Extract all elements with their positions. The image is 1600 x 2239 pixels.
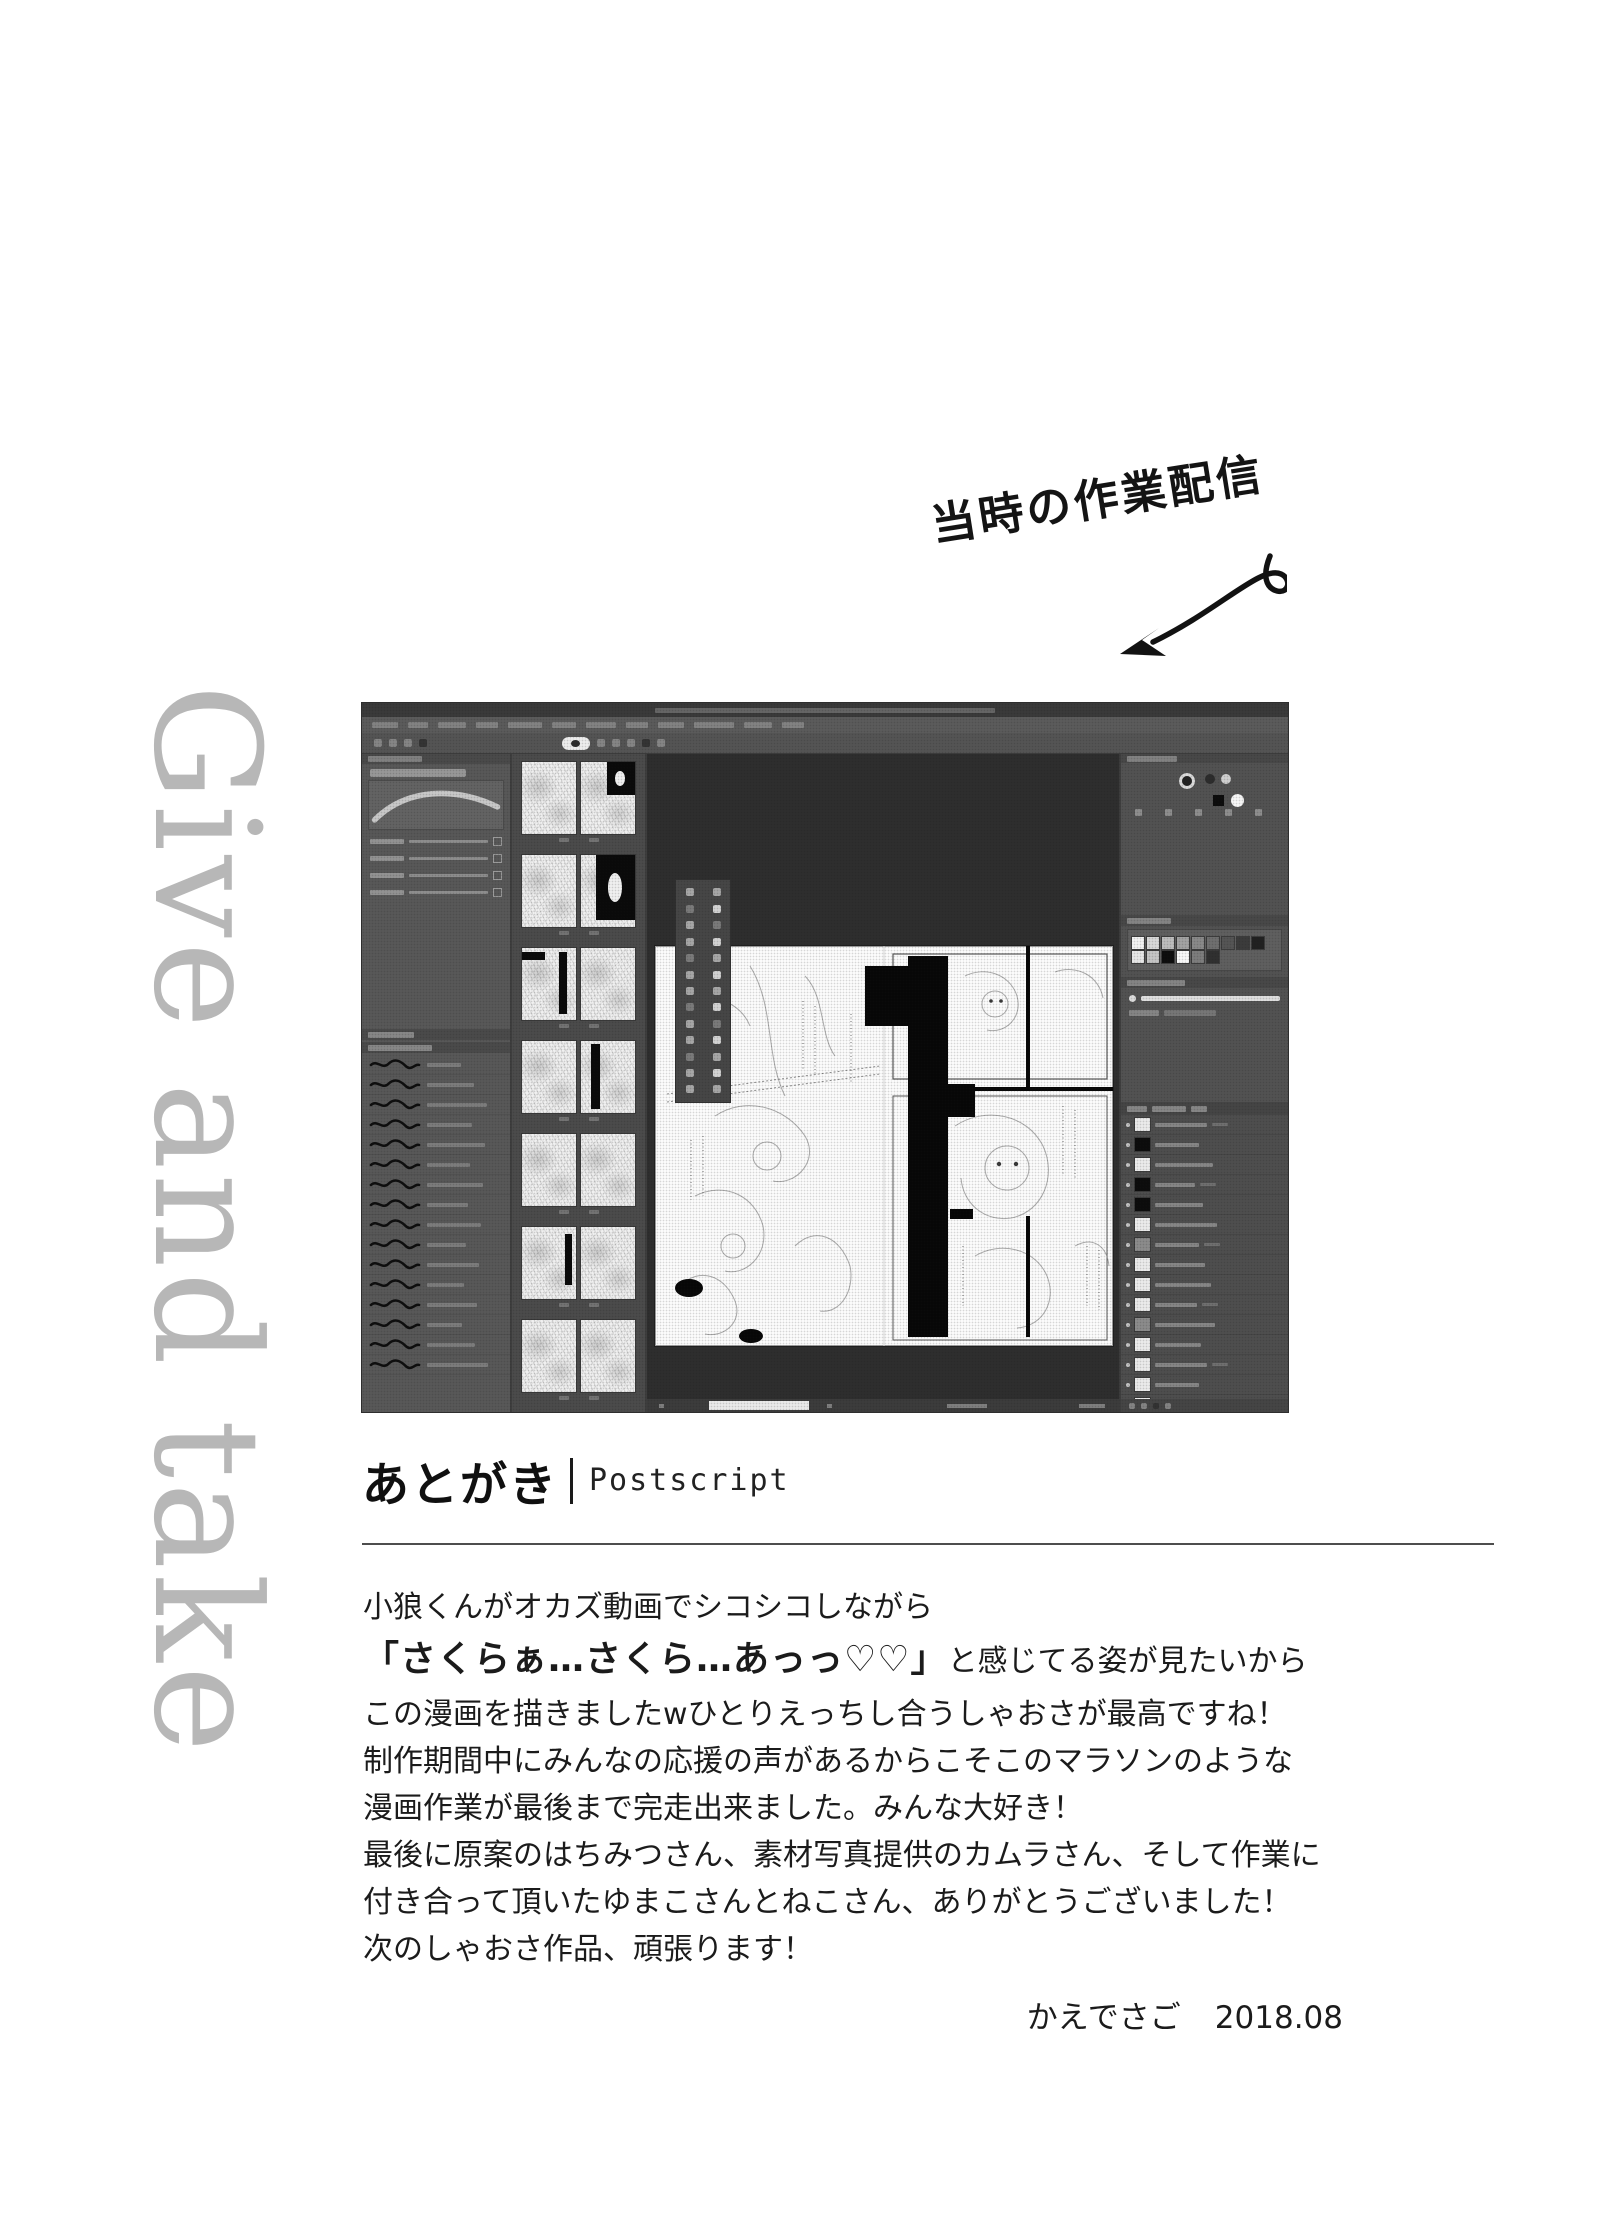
layer-row [1121,1315,1288,1335]
new-layer-icon [1129,1403,1135,1409]
page-spread-thumbnail [522,1041,635,1121]
swatch [1162,937,1174,949]
body-line: 次のしゃおさ作品、頑張ります！ [363,1926,1503,1973]
page-spread-thumbnail [522,1320,635,1400]
tool-icon [686,1003,694,1011]
page-thumbnail [522,1134,576,1206]
layer-name-placeholder [1155,1203,1203,1207]
layer-visibility-icon [1126,1223,1130,1227]
brush-label-placeholder [427,1203,468,1207]
brush-stroke-icon [369,1318,421,1331]
postscript-body: 小狼くんがオカズ動画でシコシコしながら 「さくらぁ…さくら…あっっ♡♡」と感じて… [363,1584,1503,1973]
signature-line: かえでさご2018.08 [363,1992,1343,2037]
tool-icon [713,905,721,913]
layer-name-placeholder [1155,1343,1201,1347]
tool-icon [713,971,721,979]
tool-icon [686,938,694,946]
brush-item [362,1295,510,1315]
screenshot-toolbar [362,733,1288,754]
page-number-placeholder [589,1024,599,1028]
layer-thumbnail [1135,1338,1150,1351]
layer-name-placeholder [1155,1183,1195,1187]
page-number-placeholder [589,1303,599,1307]
swatch [1177,937,1189,949]
layer-panel-header [1121,1102,1288,1115]
layer-row [1121,1255,1288,1275]
brush-label-placeholder [427,1363,488,1367]
layer-visibility-icon [1126,1263,1130,1267]
row-toggle [493,854,502,863]
layer-opacity-placeholder [1212,1123,1228,1126]
layer-header-chip [1191,1106,1207,1112]
layer-visibility-icon [1126,1163,1130,1167]
page-number-placeholder [589,1396,599,1400]
layer-panel-footer [1121,1399,1288,1412]
row-toggle [493,837,502,846]
panel-title-placeholder [368,756,422,762]
tool-section-header [1121,977,1288,988]
tool-icon [713,1020,721,1028]
brush-label-placeholder [427,1143,485,1147]
opacity-slider [1141,996,1280,1001]
brush-stroke-icon [369,1338,421,1351]
layer-row [1121,1235,1288,1255]
brush-label-placeholder [427,1083,474,1087]
layer-name-placeholder [1155,1243,1199,1247]
swatch [1192,951,1204,963]
page-thumbnail-panel [512,754,647,1412]
menu-item-placeholder [782,722,804,728]
postscript-title-en: Postscript [589,1463,790,1498]
app-logo-icon [562,737,590,750]
menu-item-placeholder [476,722,498,728]
author-name: かえでさご [1027,2000,1181,2036]
swatch [1132,937,1144,949]
tool-icon [686,905,694,913]
brush-stroke-icon [369,1358,421,1371]
palette-tab-icon [1225,809,1232,816]
layer-row [1121,1215,1288,1235]
swatch [1237,937,1249,949]
layer-opacity-placeholder [1202,1303,1218,1306]
brush-item [362,1235,510,1255]
page-number-row [522,1210,635,1214]
layer-visibility-icon [1126,1203,1130,1207]
layer-thumbnail [1135,1278,1150,1291]
canvas-area [647,754,1119,1412]
brush-stroke-icon [369,1198,421,1211]
row-label [370,856,404,861]
layer-name-placeholder [1155,1143,1199,1147]
page-thumbnail [522,1227,576,1299]
layer-visibility-icon [1126,1323,1130,1327]
tool-icon [686,921,694,929]
brush-stroke-icon [369,1078,421,1091]
layer-row [1121,1195,1288,1215]
tool-icon [713,1053,721,1061]
delete-layer-icon [1153,1403,1159,1409]
layer-name-placeholder [1155,1283,1211,1287]
brush-item [362,1255,510,1275]
toolbar-icon [374,739,382,747]
page-spread-thumbnail [522,855,635,935]
palette-tab-icon [1195,809,1202,816]
canvas-status-bar [647,1399,1119,1412]
hardness-slider [409,874,488,877]
brush-item [362,1135,510,1155]
line2-rest: と感じてる姿が見たいから [948,1644,1308,1679]
layer-name-placeholder [1155,1323,1215,1327]
tool-icon [686,954,694,962]
mask-icon [1165,1403,1171,1409]
brush-item [362,1195,510,1215]
section-label [1127,918,1171,924]
brush-label-placeholder [427,1323,462,1327]
ink-area [565,1234,572,1284]
page-thumbnail [581,1134,635,1206]
quoted-phrase: 「さくらぁ…さくら…あっっ♡♡」 [363,1639,948,1680]
postscript-heading: あとがき Postscript [362,1446,790,1515]
layer-thumbnail [1135,1198,1150,1211]
sub-tool-section-header [362,1029,510,1040]
layer-header-chip [1127,1106,1147,1112]
layer-opacity-placeholder [1200,1183,1216,1186]
thumbnail-pair [522,1227,635,1299]
tool-property-header [362,754,510,764]
layer-row [1121,1275,1288,1295]
swatch [1192,937,1204,949]
page-number-row [522,1303,635,1307]
titlebar-text-placeholder [655,708,995,713]
page-thumbnail [522,948,576,1020]
panel-spacer [362,901,510,1029]
brush-item [362,1335,510,1355]
blend-row [1121,1006,1288,1020]
brush-stroke-icon [369,1218,421,1231]
layer-row [1121,1295,1288,1315]
tool-icon [686,1053,694,1061]
tool-icon [686,971,694,979]
toolbar-icon [419,739,427,747]
layer-thumbnail [1135,1258,1150,1271]
layer-row [1121,1355,1288,1375]
page-number-placeholder [559,1117,569,1121]
brush-stroke-icon [369,1158,421,1171]
brush-label-placeholder [427,1343,475,1347]
swatch-row [1132,937,1277,949]
menu-item-placeholder [372,722,398,728]
page-number-placeholder [589,931,599,935]
layer-row [1121,1115,1288,1135]
brush-label-placeholder [427,1163,470,1167]
status-zoom-placeholder [947,1404,987,1408]
floating-tool-palette [675,879,731,1103]
page-spread-thumbnail [522,1134,635,1214]
heading-rule [362,1543,1494,1545]
opacity-slider-row [1121,991,1288,1006]
page-number-row [522,1024,635,1028]
layer-visibility-icon [1126,1143,1130,1147]
publish-date: 2018.08 [1215,2000,1343,2036]
menu-item-placeholder [508,722,542,728]
layer-name-placeholder [1155,1303,1197,1307]
heading-divider [570,1458,573,1504]
page-number-placeholder [589,1210,599,1214]
page-thumbnail [581,1041,635,1113]
status-mark [827,1404,832,1408]
brush-stroke-icon [369,1178,421,1191]
opacity-row [362,850,510,867]
brush-size-row [362,833,510,850]
folder-icon [1141,1403,1147,1409]
menu-item-placeholder [694,722,734,728]
layer-row [1121,1335,1288,1355]
toolbar-icon [389,739,397,747]
tool-icon [713,954,721,962]
layer-visibility-icon [1126,1383,1130,1387]
brush-item [362,1115,510,1135]
ink-area [607,762,635,795]
layer-row [1121,1375,1288,1395]
brush-item [362,1175,510,1195]
status-mark [1079,1404,1105,1408]
tool-icon [686,1036,694,1044]
brush-stroke-icon [369,1278,421,1291]
handwritten-annotation: 当時の作業配信 [926,415,1410,554]
menu-item-placeholder [626,722,648,728]
layer-visibility-icon [1126,1363,1130,1367]
blend-label [1129,1010,1159,1016]
toolbar-icon [404,739,412,747]
layer-visibility-icon [1126,1183,1130,1187]
tool-icon [686,1085,694,1093]
swatch [1162,951,1174,963]
row-label [370,839,404,844]
size-slider [409,840,488,843]
layer-visibility-icon [1126,1243,1130,1247]
page-thumbnail [522,762,576,834]
section-label [1127,980,1185,986]
toolbar-icon [597,739,605,747]
panel-title-placeholder [1127,756,1177,762]
brush-item [362,1075,510,1095]
thumbnail-pair [522,1134,635,1206]
brush-stroke-icon [369,1058,421,1071]
ink-area [596,855,635,920]
page-thumbnail [581,855,635,927]
body-line: この漫画を描きましたwひとりえっちし合うしゃおさが最高ですね！ [363,1691,1503,1738]
brush-stroke-preview [368,780,504,830]
layer-name-placeholder [1155,1383,1199,1387]
thumbnail-pair [522,855,635,927]
section-label [368,1032,414,1038]
screenshot-menubar [362,717,1288,733]
tool-icon [686,987,694,995]
handwritten-arrow-icon [1112,548,1287,676]
body-line: 漫画作業が最後まで完走出来ました。みんな大好き！ [363,1785,1503,1832]
screenshot-titlebar [362,703,1288,717]
toolbar-icon [612,739,620,747]
status-mark [659,1404,664,1408]
layer-name-placeholder [1155,1123,1207,1127]
thumbnail-pair [522,1041,635,1113]
brush-label-placeholder [427,1283,464,1287]
page-number-placeholder [559,931,569,935]
toolbar-icon [627,739,635,747]
toolbar-icon [642,739,650,747]
tool-icon [686,1020,694,1028]
page-number-placeholder [559,1210,569,1214]
layer-thumbnail [1135,1358,1150,1371]
dark-color-icon [1205,774,1215,784]
brush-item [362,1315,510,1335]
afterword-page: { "annotation": { "text": "当時の作業配信" }, "… [0,0,1600,2239]
brush-stroke-icon [369,1238,421,1251]
body-line: 付き合って頂いたゆまこさんとねこさん、ありがとうございました！ [363,1879,1503,1926]
tool-icon [713,888,721,896]
layer-thumbnail [1135,1118,1150,1131]
swatch-section-header [1121,915,1288,926]
color-controls [1121,763,1288,823]
layer-thumbnail [1135,1218,1150,1231]
layer-visibility-icon [1126,1283,1130,1287]
section-label [368,1045,432,1051]
layer-row [1121,1155,1288,1175]
hardness-row [362,867,510,884]
brush-item [362,1055,510,1075]
layer-list [1121,1115,1288,1399]
brush-stroke-icon [369,1258,421,1271]
body-line: 最後に原案のはちみつさん、素材写真提供のカムラさん、そして作業に [363,1832,1503,1879]
palette-tab-icon [1255,809,1262,816]
page-spread-thumbnail [522,762,635,842]
tool-icon [713,938,721,946]
brush-stroke-icon [369,1118,421,1131]
swatch-row [1132,951,1277,963]
layer-visibility-icon [1126,1343,1130,1347]
page-number-row [522,1396,635,1400]
thumbnail-pair [522,1320,635,1392]
layer-thumbnail [1135,1178,1150,1191]
layer-opacity-placeholder [1204,1243,1220,1246]
layer-name-placeholder [1155,1223,1217,1227]
brush-label-placeholder [427,1303,477,1307]
tool-icon [713,987,721,995]
body-line: 小狼くんがオカズ動画でシコシコしながら [363,1584,1503,1631]
brush-list [362,1055,510,1375]
row-toggle [493,888,502,897]
layer-visibility-icon [1126,1123,1130,1127]
layer-row [1121,1135,1288,1155]
page-number-placeholder [589,1117,599,1121]
page-number-placeholder [559,838,569,842]
layer-row [1121,1175,1288,1195]
swatch [1177,951,1189,963]
brush-label-placeholder [427,1243,466,1247]
color-panel-header [1121,754,1288,763]
brush-label-placeholder [427,1063,461,1067]
tool-property-panel [362,754,512,1412]
layer-thumbnail [1135,1138,1150,1151]
swatch [1252,937,1264,949]
brush-item [362,1155,510,1175]
palette-tab-icon [1165,809,1172,816]
brush-item [362,1095,510,1115]
ink-area [559,952,567,1014]
layer-name-placeholder [1155,1163,1213,1167]
layer-thumbnail [1135,1158,1150,1171]
toolbar-icon [657,739,665,747]
page-number-placeholder [559,1303,569,1307]
swatch [1132,951,1144,963]
light-color-icon [1221,774,1231,784]
page-number-placeholder [589,838,599,842]
page-thumbnail [522,855,576,927]
body-line: 制作期間中にみんなの応援の声があるからこそこのマラソンのような [363,1738,1503,1785]
thumbnail-pair [522,948,635,1020]
ink-area [591,1044,600,1109]
color-layer-panel [1119,754,1288,1412]
side-title-give-and-take: Give and take [126,684,291,2014]
color-swatch-strip [1127,929,1282,971]
stabilize-row [362,884,510,901]
sub-tool-section-header-2 [362,1042,510,1053]
tool-icon [713,1069,721,1077]
layer-thumbnail [1135,1378,1150,1391]
menu-item-placeholder [658,722,684,728]
menu-item-placeholder [744,722,772,728]
brush-label-placeholder [427,1183,483,1187]
layer-thumbnail [1135,1318,1150,1331]
brush-label-placeholder [427,1103,487,1107]
ink-area [522,952,545,960]
postscript-title-jp: あとがき [362,1446,558,1515]
page-number-placeholder [559,1024,569,1028]
swatch [1222,937,1234,949]
palette-tab-icon [1135,809,1142,816]
swatch [1147,951,1159,963]
swatch [1147,937,1159,949]
layer-name-placeholder [1155,1263,1205,1267]
opacity-slider [409,857,488,860]
layer-opacity-placeholder [1212,1363,1228,1366]
brush-label-placeholder [427,1263,479,1267]
side-title-text: Give and take [126,684,286,1756]
brush-label-placeholder [427,1223,481,1227]
brush-name-placeholder [370,769,466,777]
layer-header-chip [1152,1106,1186,1112]
sub-color-swatch [1231,794,1244,807]
tool-icon [686,888,694,896]
color-wheel-icon [1179,773,1195,789]
layer-thumbnail [1135,1298,1150,1311]
menu-item-placeholder [408,722,428,728]
body-line: 「さくらぁ…さくら…あっっ♡♡」と感じてる姿が見たいから [363,1631,1503,1691]
page-number-row [522,931,635,935]
row-label [370,890,404,895]
layer-visibility-icon [1126,1303,1130,1307]
page-thumbnail [581,1227,635,1299]
slider-knob [1129,995,1136,1002]
menu-item-placeholder [438,722,466,728]
brush-label-placeholder [427,1123,472,1127]
page-number-row [522,1117,635,1121]
layer-name-placeholder [1155,1363,1207,1367]
status-progress-segment [709,1401,809,1410]
swatch [1207,951,1219,963]
layer-thumbnail [1135,1238,1150,1251]
blend-value [1164,1010,1216,1016]
